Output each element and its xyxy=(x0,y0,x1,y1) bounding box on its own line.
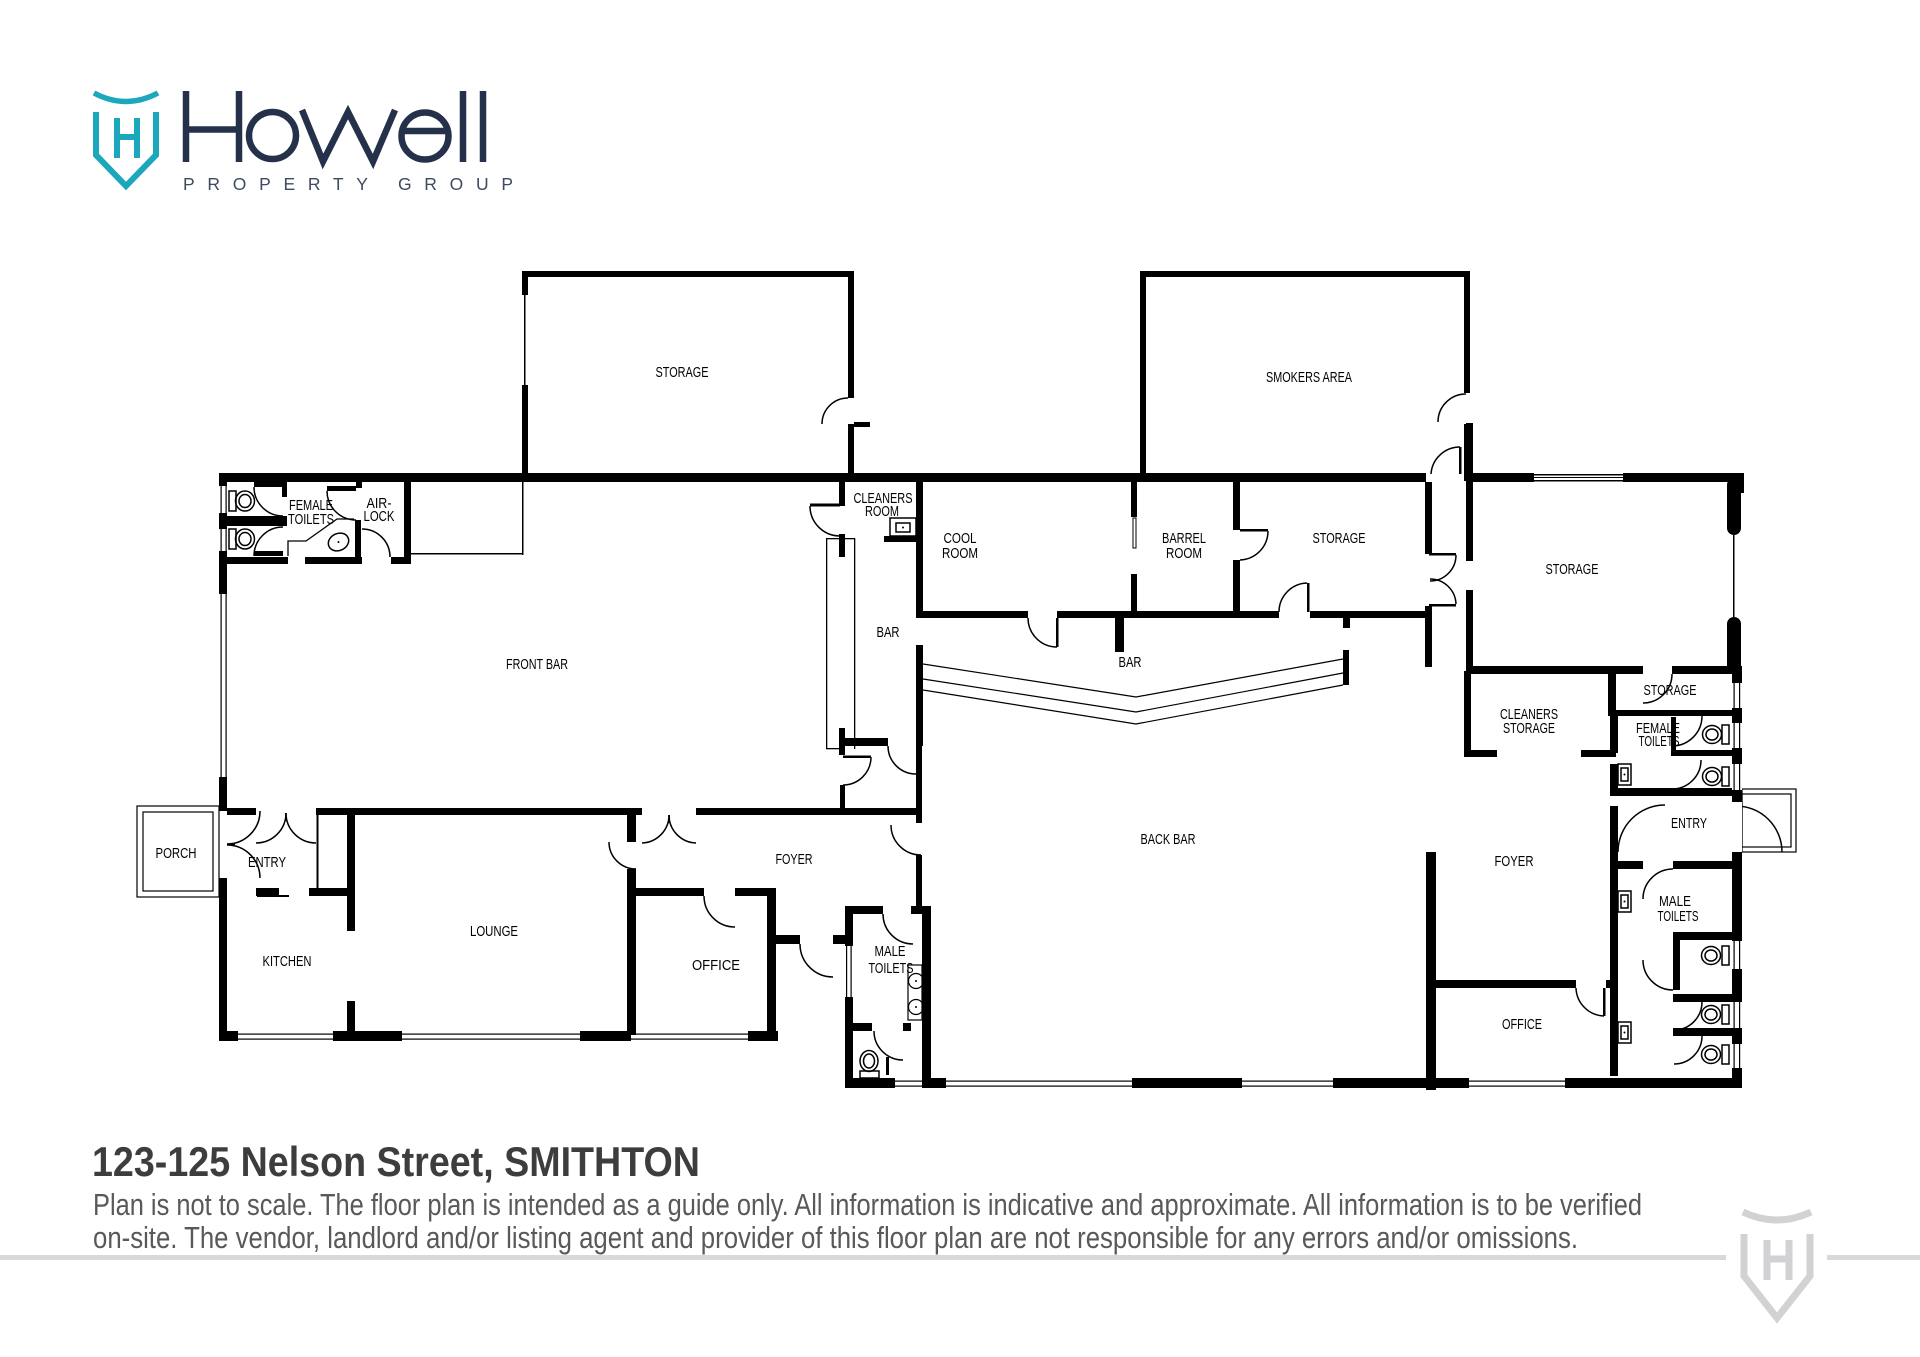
svg-text:FOYER: FOYER xyxy=(776,851,813,868)
svg-text:PORCH: PORCH xyxy=(156,845,197,862)
svg-text:FOYER: FOYER xyxy=(1495,853,1534,870)
svg-text:FRONT BAR: FRONT BAR xyxy=(506,656,568,673)
svg-text:ENTRY: ENTRY xyxy=(1671,815,1707,832)
svg-text:STORAGE: STORAGE xyxy=(1546,561,1599,578)
svg-text:STORAGE: STORAGE xyxy=(1644,682,1697,699)
svg-text:STORAGE: STORAGE xyxy=(1503,720,1555,737)
svg-text:LOCK: LOCK xyxy=(364,508,395,525)
svg-text:ROOM: ROOM xyxy=(865,503,899,520)
svg-text:STORAGE: STORAGE xyxy=(1313,530,1366,547)
svg-text:on-site. The vendor, landlord: on-site. The vendor, landlord and/or lis… xyxy=(93,1220,1578,1255)
svg-text:LOUNGE: LOUNGE xyxy=(470,923,518,940)
svg-text:BAR: BAR xyxy=(1119,654,1142,671)
svg-text:Plan is not to scale. The floo: Plan is not to scale. The floor plan is … xyxy=(93,1187,1642,1222)
svg-text:OFFICE: OFFICE xyxy=(692,957,740,974)
svg-text:OFFICE: OFFICE xyxy=(1502,1016,1542,1033)
svg-text:TOILETS: TOILETS xyxy=(288,511,334,528)
svg-text:123-125 Nelson Street, SMITHT: 123-125 Nelson Street, SMITHTON xyxy=(92,1138,700,1185)
svg-text:TOILETS: TOILETS xyxy=(1639,733,1680,750)
svg-text:BAR: BAR xyxy=(877,624,900,641)
svg-text:TOILETS: TOILETS xyxy=(1658,908,1699,925)
svg-text:BACK BAR: BACK BAR xyxy=(1141,831,1196,848)
svg-text:ROOM: ROOM xyxy=(942,545,978,562)
svg-text:MALE: MALE xyxy=(875,943,906,960)
svg-text:STORAGE: STORAGE xyxy=(656,364,709,381)
svg-text:ENTRY: ENTRY xyxy=(248,854,286,871)
svg-text:TOILETS: TOILETS xyxy=(869,960,914,977)
svg-text:ROOM: ROOM xyxy=(1166,545,1202,562)
svg-text:SMOKERS AREA: SMOKERS AREA xyxy=(1266,369,1352,386)
svg-text:KITCHEN: KITCHEN xyxy=(263,953,312,970)
